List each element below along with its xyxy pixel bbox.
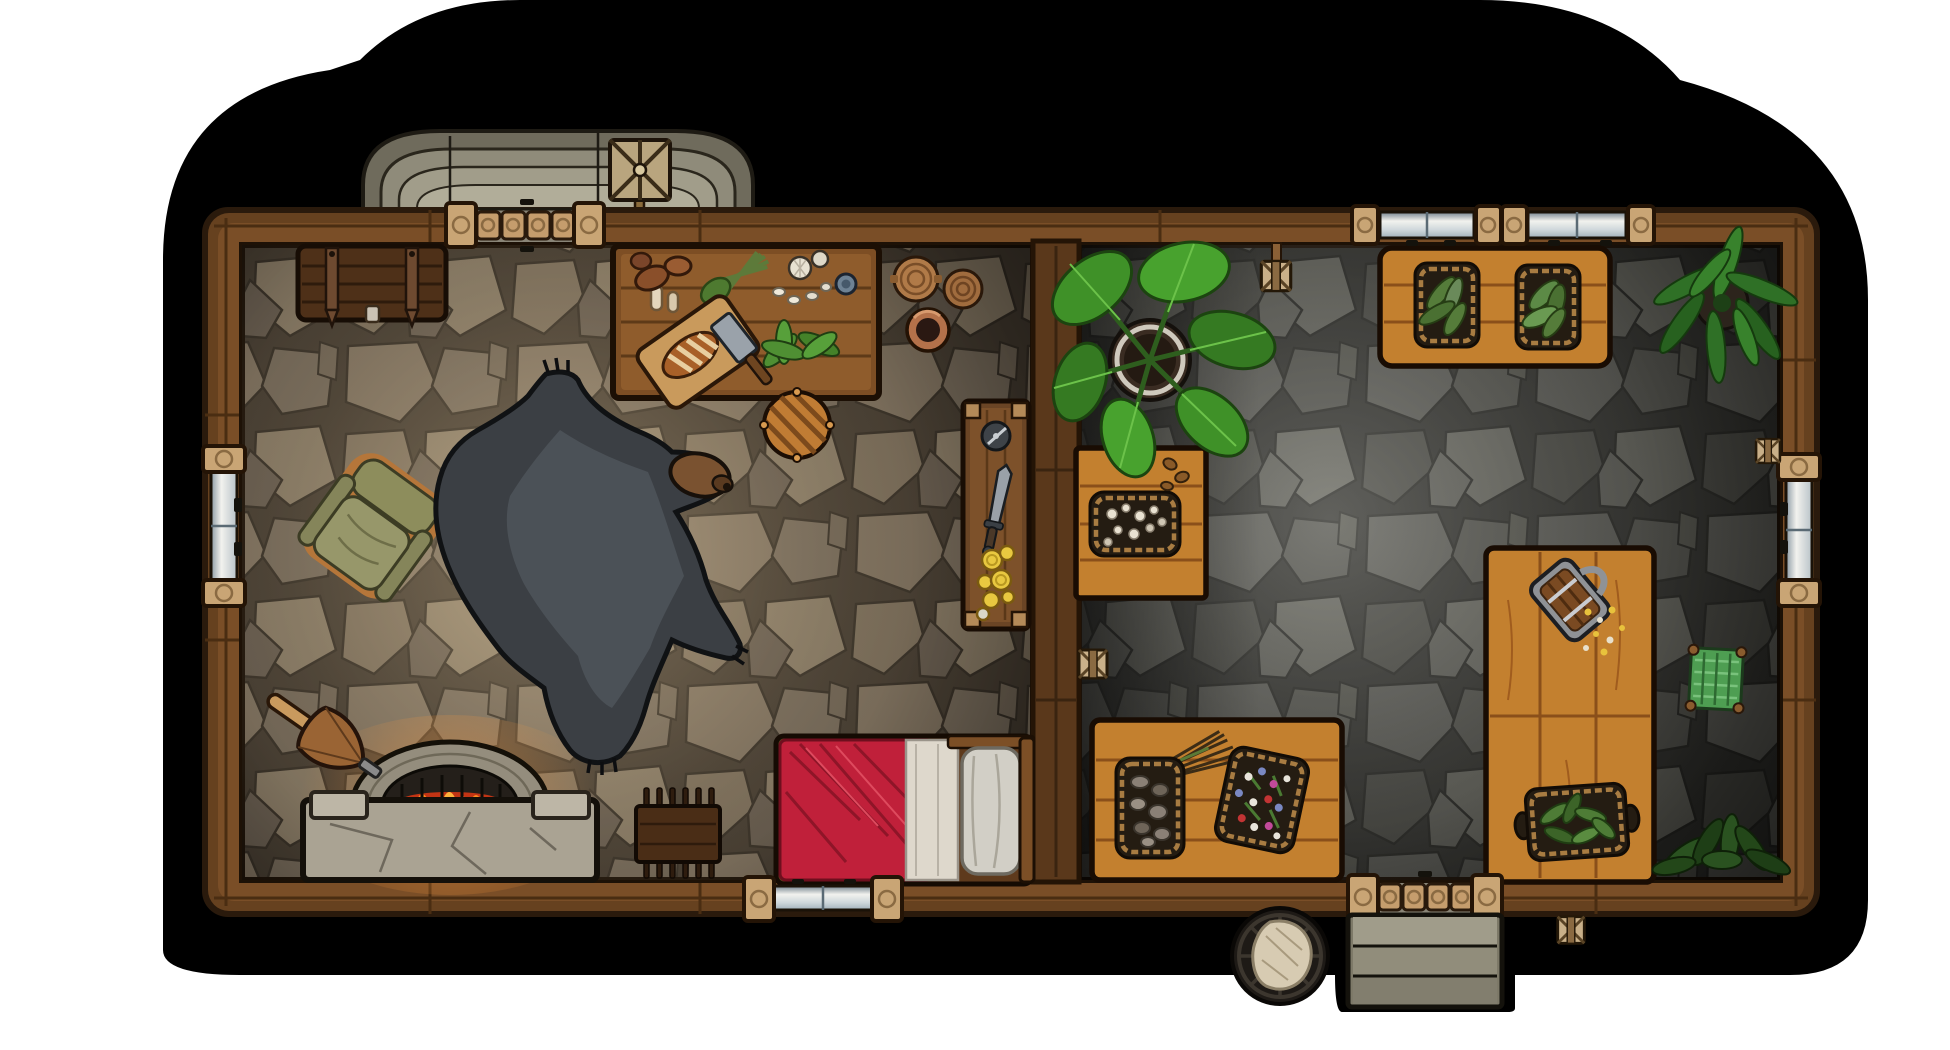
herb-planter-table <box>1380 248 1610 366</box>
battlemap-stage <box>0 0 1950 1050</box>
bed <box>776 736 1034 884</box>
barrel <box>1232 908 1328 1004</box>
long-table <box>1486 546 1654 882</box>
wall-table <box>963 401 1029 629</box>
herb-tray-long-table <box>1513 782 1642 862</box>
wall-sconce-east <box>1756 439 1780 463</box>
divider-wall <box>1033 241 1079 882</box>
battlemap-canvas <box>0 0 1950 1050</box>
cup <box>836 274 856 294</box>
wall-sconce-divider <box>1079 650 1107 678</box>
compass-disc <box>982 422 1010 450</box>
mushroom-tray <box>1116 758 1184 858</box>
stone-steps <box>1348 915 1502 1007</box>
herb-table <box>1092 720 1342 880</box>
green-rug <box>1685 645 1746 714</box>
chest <box>298 246 446 326</box>
prep-table <box>613 246 879 412</box>
wall-sconce-south <box>1558 917 1585 944</box>
